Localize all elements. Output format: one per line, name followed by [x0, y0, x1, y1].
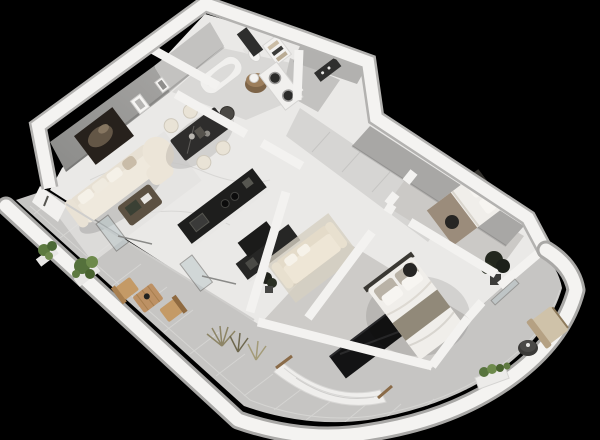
- plant-foliage: [72, 270, 80, 278]
- apartment-render-stage: 3D isometric render of a furnished one-b…: [0, 0, 600, 440]
- second-bedroom-left-wall: [406, 172, 414, 182]
- bathroom-entry-divider: [297, 50, 299, 100]
- plant-foliage: [487, 364, 497, 374]
- vanity-basin: [250, 74, 259, 83]
- second-bedroom-left-wall: [388, 194, 396, 204]
- plant-foliage: [496, 364, 504, 372]
- plant-foliage: [504, 363, 511, 370]
- floor-plan-svg: 3D isometric render of a furnished one-b…: [0, 0, 600, 440]
- plant-foliage: [86, 256, 98, 268]
- second-bedroom-bottom-wall: [386, 206, 394, 211]
- plant-pot: [265, 286, 273, 293]
- plant-foliage: [85, 269, 95, 279]
- plant-foliage: [47, 241, 57, 251]
- second-bedroom-pouf: [445, 215, 459, 229]
- terrace-side-table: [518, 340, 538, 356]
- plant-foliage: [496, 259, 510, 273]
- master-stool: [403, 263, 417, 277]
- plant-foliage: [45, 252, 53, 260]
- cup: [526, 343, 530, 347]
